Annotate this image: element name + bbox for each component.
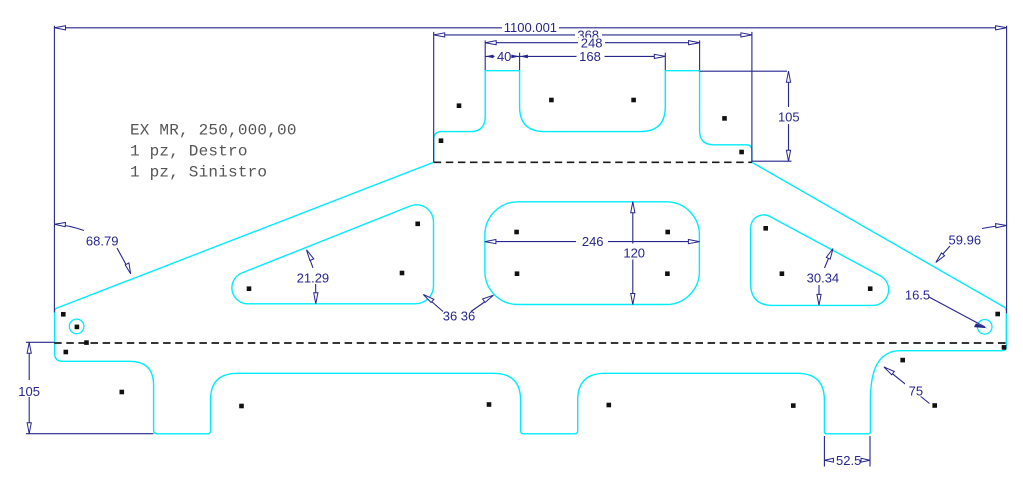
- svg-text:105: 105: [778, 110, 800, 125]
- svg-text:30.34: 30.34: [807, 271, 840, 286]
- svg-text:1 pz, Destro: 1 pz, Destro: [130, 143, 248, 161]
- svg-text:168: 168: [579, 49, 601, 64]
- svg-text:16.5: 16.5: [905, 287, 930, 302]
- svg-text:40: 40: [497, 49, 511, 64]
- svg-text:21.29: 21.29: [297, 271, 330, 286]
- svg-text:75: 75: [909, 383, 923, 398]
- svg-text:68.79: 68.79: [86, 233, 119, 248]
- svg-text:1100.001: 1100.001: [504, 20, 557, 35]
- svg-text:EX MR, 250,000,00: EX MR, 250,000,00: [130, 122, 297, 140]
- svg-text:246: 246: [582, 234, 604, 249]
- svg-text:59.96: 59.96: [949, 232, 982, 247]
- svg-text:120: 120: [623, 245, 645, 260]
- svg-text:1 pz, Sinistro: 1 pz, Sinistro: [130, 164, 267, 182]
- svg-text:36 36: 36 36: [443, 308, 476, 323]
- svg-text:105: 105: [18, 384, 40, 399]
- svg-text:52.5: 52.5: [836, 453, 861, 468]
